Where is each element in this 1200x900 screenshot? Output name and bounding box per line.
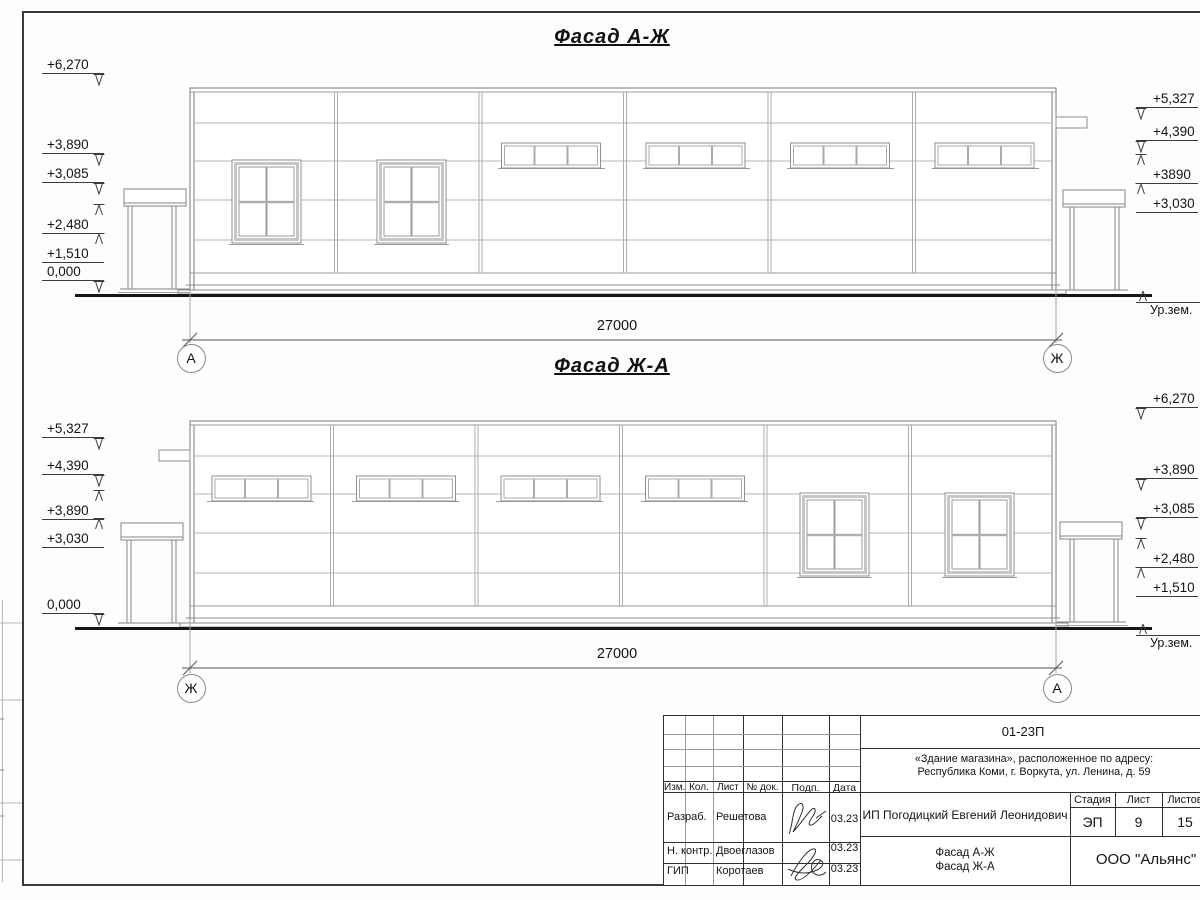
elevation-mark: 0,000 [42, 264, 104, 281]
elevation-value: +6,270 [47, 58, 89, 72]
dimension-label: 27000 [557, 318, 677, 334]
elevation-mark: +4,390 [42, 458, 104, 475]
elevation-mark: +3,030 [1136, 196, 1198, 213]
level-arrow-down-icon [1135, 107, 1147, 120]
level-arrow-down-icon [93, 182, 105, 195]
tb-sheets-label: Листов [1162, 794, 1200, 806]
tb-object-line1: «Здание магазина», расположенное по адре… [860, 753, 1200, 765]
level-arrow-down-icon [1135, 407, 1147, 420]
elevation-value: +3,890 [47, 138, 89, 152]
elevation-value: +6,270 [1153, 392, 1195, 406]
elevation-mark: +3,030 [42, 531, 104, 548]
tb-col-ndok: № док. [743, 782, 782, 793]
level-arrow-up-icon [93, 517, 105, 530]
drawing-sheet: { "colors": { "ink": "#141414", "frame":… [0, 0, 1200, 900]
level-arrow-down-icon [1135, 478, 1147, 491]
level-arrow-up-icon [1135, 182, 1147, 195]
level-arrow-up-icon [93, 203, 105, 216]
tb-doc-number: 01-23П [860, 724, 1186, 739]
tb-col-izm: Изм. [664, 782, 685, 793]
level-arrow-down-icon [93, 437, 105, 450]
elevation-value: +3,030 [1153, 197, 1195, 211]
signature [783, 842, 828, 884]
elevation-mark: 0,000 [42, 597, 104, 614]
tb-client: ИП Погодицкий Евгений Леонидович [860, 808, 1070, 822]
tb-stage-label: Стадия [1070, 794, 1115, 806]
facade-title-zh-a: Фасад Ж-А [482, 355, 742, 378]
elevation-value: +3,085 [1153, 502, 1195, 516]
sheet-edge-table [0, 600, 22, 882]
axis-letter: Ж [1051, 350, 1064, 366]
elevation-mark: +3,890 [1136, 462, 1198, 479]
facade-zh-a-linework [118, 421, 1128, 627]
level-arrow-up-icon [93, 489, 105, 502]
elevation-mark: +5,327 [42, 421, 104, 438]
level-arrow-down-icon [93, 280, 105, 293]
title-block: Изм. Кол. Лист № док. Подп. Дата Разраб.… [663, 715, 1200, 886]
tb-sheet-label: Лист [1115, 794, 1162, 806]
elevation-value: +1,510 [1153, 581, 1195, 595]
tb-drawing-title1: Фасад А-Ж [860, 847, 1070, 859]
axis-marker: Ж [1043, 344, 1072, 373]
tb-name: Коротаев [716, 865, 764, 877]
tb-object-line2: Республика Коми, г. Воркута, ул. Ленина,… [860, 766, 1200, 778]
tb-col-kol: Кол. [685, 782, 713, 793]
elevation-value: +2,480 [1153, 552, 1195, 566]
ground-level-label: Ур.зем. [1136, 291, 1200, 317]
ground-line-top [75, 294, 1152, 297]
elevation-value: +5,327 [47, 422, 89, 436]
elevation-value: +3,085 [47, 167, 89, 181]
level-arrow-up-icon [1135, 537, 1147, 550]
tb-role: ГИП [667, 865, 689, 877]
elevation-mark: +1,510 [42, 246, 104, 263]
tb-stage-value: ЭП [1070, 814, 1115, 830]
ground-level-text: Ур.зем. [1150, 636, 1192, 650]
elevation-mark: +5,327 [1136, 91, 1198, 108]
level-arrow-up-icon [93, 232, 105, 245]
level-arrow-down-icon [1135, 517, 1147, 530]
elevation-value: +1,510 [47, 247, 89, 261]
tb-name: Двоеглазов [716, 845, 774, 857]
facade-a-zh-linework [118, 88, 1128, 294]
elevation-mark: +3,085 [1136, 501, 1198, 518]
tb-date: 03.23 [829, 863, 860, 875]
axis-marker: Ж [177, 674, 206, 703]
axis-marker: А [1043, 674, 1072, 703]
elevation-value: +4,390 [47, 459, 89, 473]
level-arrow-up-icon [1135, 566, 1147, 579]
level-arrow-down-icon [93, 73, 105, 86]
elevation-mark: +6,270 [42, 57, 104, 74]
tb-date: 03.23 [829, 842, 860, 854]
tb-col-data: Дата [829, 782, 860, 794]
elevation-mark: +1,510 [1136, 580, 1198, 597]
elevation-value: +3,890 [1153, 463, 1195, 477]
tb-role: Разраб. [667, 811, 707, 823]
elevation-mark: +3,085 [42, 166, 104, 183]
elevation-mark: +6,270 [1136, 391, 1198, 408]
elevation-value: 0,000 [47, 265, 81, 279]
tb-col-list: Лист [713, 782, 743, 793]
axis-letter: А [1052, 680, 1061, 696]
ground-line-bottom [75, 627, 1152, 630]
ground-level-label: Ур.зем. [1136, 624, 1200, 650]
level-arrow-up-icon [1135, 153, 1147, 166]
level-arrow-down-icon [1135, 140, 1147, 153]
level-arrow-down-icon [93, 153, 105, 166]
signature [783, 796, 828, 840]
dimension-label: 27000 [557, 646, 677, 662]
level-arrow-down-icon [93, 613, 105, 626]
axis-letter: А [186, 350, 195, 366]
elevation-mark: +4,390 [1136, 124, 1198, 141]
elevation-value: +5,327 [1153, 92, 1195, 106]
elevation-value: +3890 [1153, 168, 1191, 182]
tb-sheet-number: 9 [1115, 814, 1162, 830]
elevation-value: +3,890 [47, 504, 89, 518]
tb-name: Решетова [716, 811, 766, 823]
elevation-value: 0,000 [47, 598, 81, 612]
level-arrow-down-icon [93, 474, 105, 487]
axis-letter: Ж [185, 680, 198, 696]
axis-marker: А [177, 344, 206, 373]
facade-title-a-zh: Фасад А-Ж [482, 26, 742, 49]
elevation-value: +3,030 [47, 532, 89, 546]
tb-role: Н. контр. [667, 845, 712, 857]
elevation-mark: +3,890 [42, 137, 104, 154]
elevation-value: +4,390 [1153, 125, 1195, 139]
tb-date: 03.23 [829, 813, 860, 825]
tb-drawing-title2: Фасад Ж-А [860, 861, 1070, 873]
ground-level-text: Ур.зем. [1150, 303, 1192, 317]
tb-organization: ООО "Альянс" [1070, 851, 1200, 868]
tb-col-podp: Подп. [782, 782, 829, 794]
elevation-value: +2,480 [47, 218, 89, 232]
tb-sheets-total: 15 [1162, 814, 1200, 830]
